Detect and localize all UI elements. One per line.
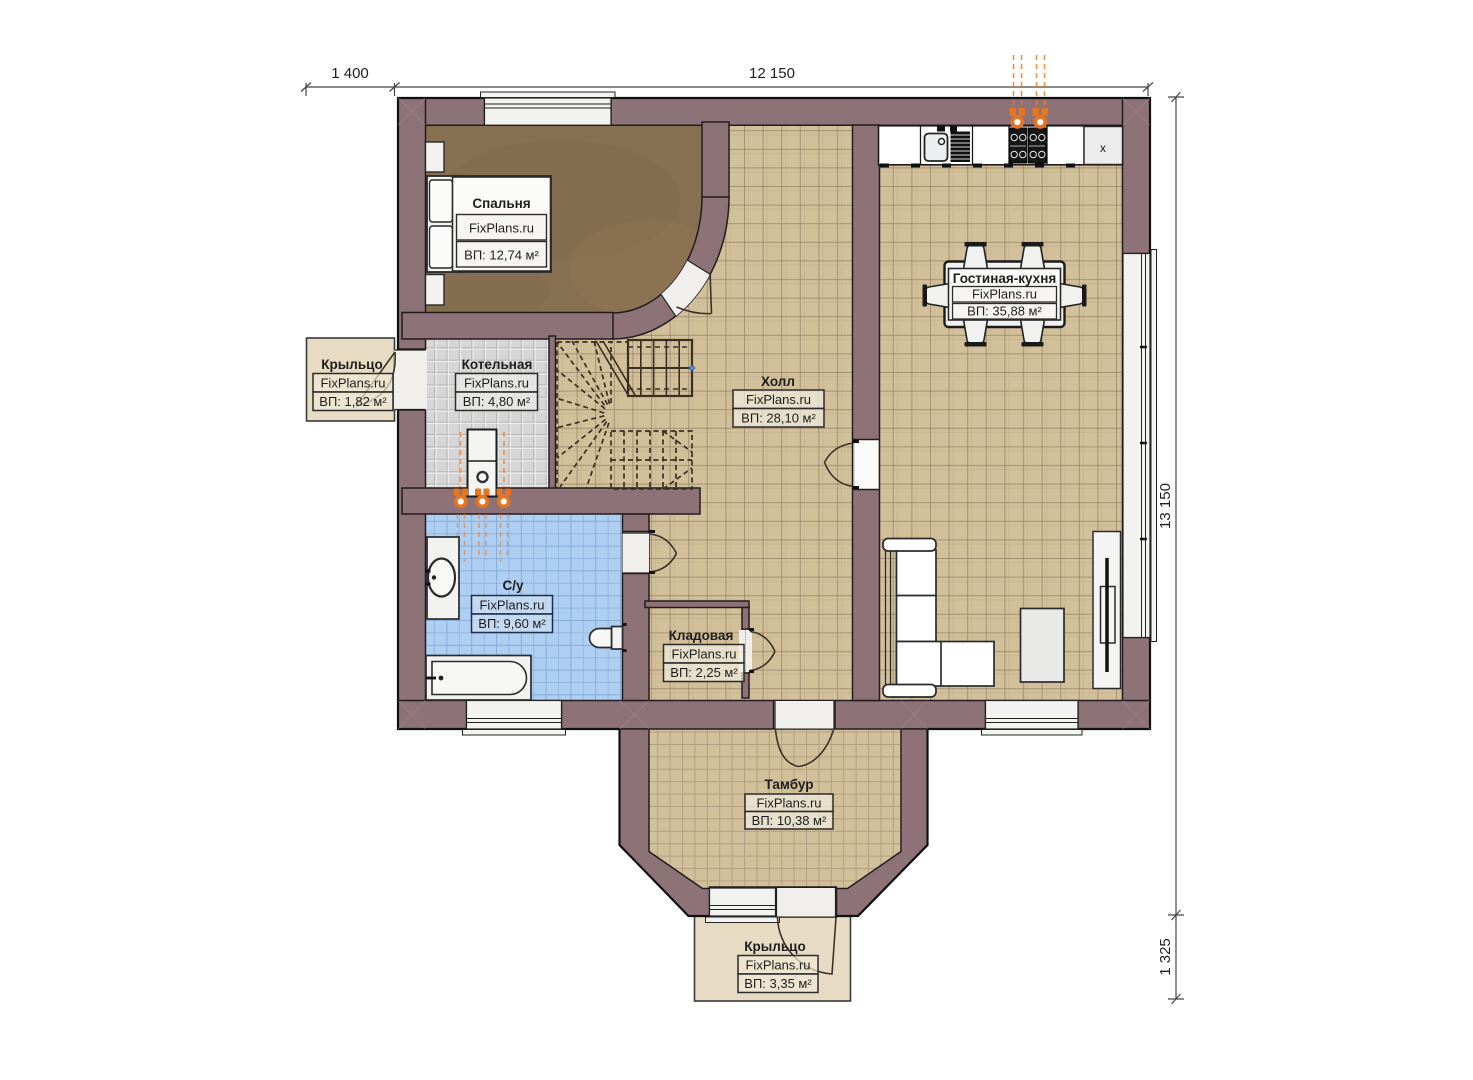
svg-text:FixPlans.ru: FixPlans.ru [320, 376, 385, 391]
svg-text:Котельная: Котельная [462, 357, 533, 372]
svg-text:ВП: 1,82 м²: ВП: 1,82 м² [319, 394, 387, 409]
svg-text:FixPlans.ru: FixPlans.ru [464, 376, 529, 391]
svg-text:ВП: 4,80 м²: ВП: 4,80 м² [463, 394, 531, 409]
svg-text:Холл: Холл [761, 374, 795, 389]
svg-text:ВП: 12,74 м²: ВП: 12,74 м² [464, 248, 539, 263]
svg-text:1 400: 1 400 [331, 65, 369, 82]
svg-text:13 150: 13 150 [1157, 483, 1174, 529]
svg-text:ВП: 10,38 м²: ВП: 10,38 м² [752, 813, 827, 828]
svg-text:Крыльцо: Крыльцо [321, 357, 382, 372]
svg-text:FixPlans.ru: FixPlans.ru [972, 287, 1037, 302]
svg-text:ВП: 3,35 м²: ВП: 3,35 м² [744, 976, 812, 991]
svg-text:12 150: 12 150 [749, 65, 795, 82]
svg-text:Крыльцо: Крыльцо [744, 939, 805, 954]
svg-text:FixPlans.ru: FixPlans.ru [469, 221, 534, 236]
svg-text:Гостиная-кухня: Гостиная-кухня [953, 271, 1056, 286]
svg-text:FixPlans.ru: FixPlans.ru [756, 796, 821, 811]
svg-text:Кладовая: Кладовая [669, 628, 734, 643]
svg-text:1 325: 1 325 [1157, 938, 1174, 976]
svg-text:FixPlans.ru: FixPlans.ru [746, 392, 811, 407]
svg-text:ВП: 2,25 м²: ВП: 2,25 м² [670, 665, 738, 680]
svg-text:С/у: С/у [502, 578, 524, 593]
svg-text:ВП: 9,60 м²: ВП: 9,60 м² [478, 616, 546, 631]
svg-text:FixPlans.ru: FixPlans.ru [745, 958, 810, 973]
svg-text:ВП: 28,10 м²: ВП: 28,10 м² [741, 411, 816, 426]
svg-text:Спальня: Спальня [472, 196, 530, 211]
svg-text:x: x [1100, 141, 1106, 155]
svg-text:ВП: 35,88 м²: ВП: 35,88 м² [967, 304, 1042, 319]
svg-text:FixPlans.ru: FixPlans.ru [671, 647, 736, 662]
svg-text:Тамбур: Тамбур [765, 777, 814, 792]
svg-text:FixPlans.ru: FixPlans.ru [479, 598, 544, 613]
